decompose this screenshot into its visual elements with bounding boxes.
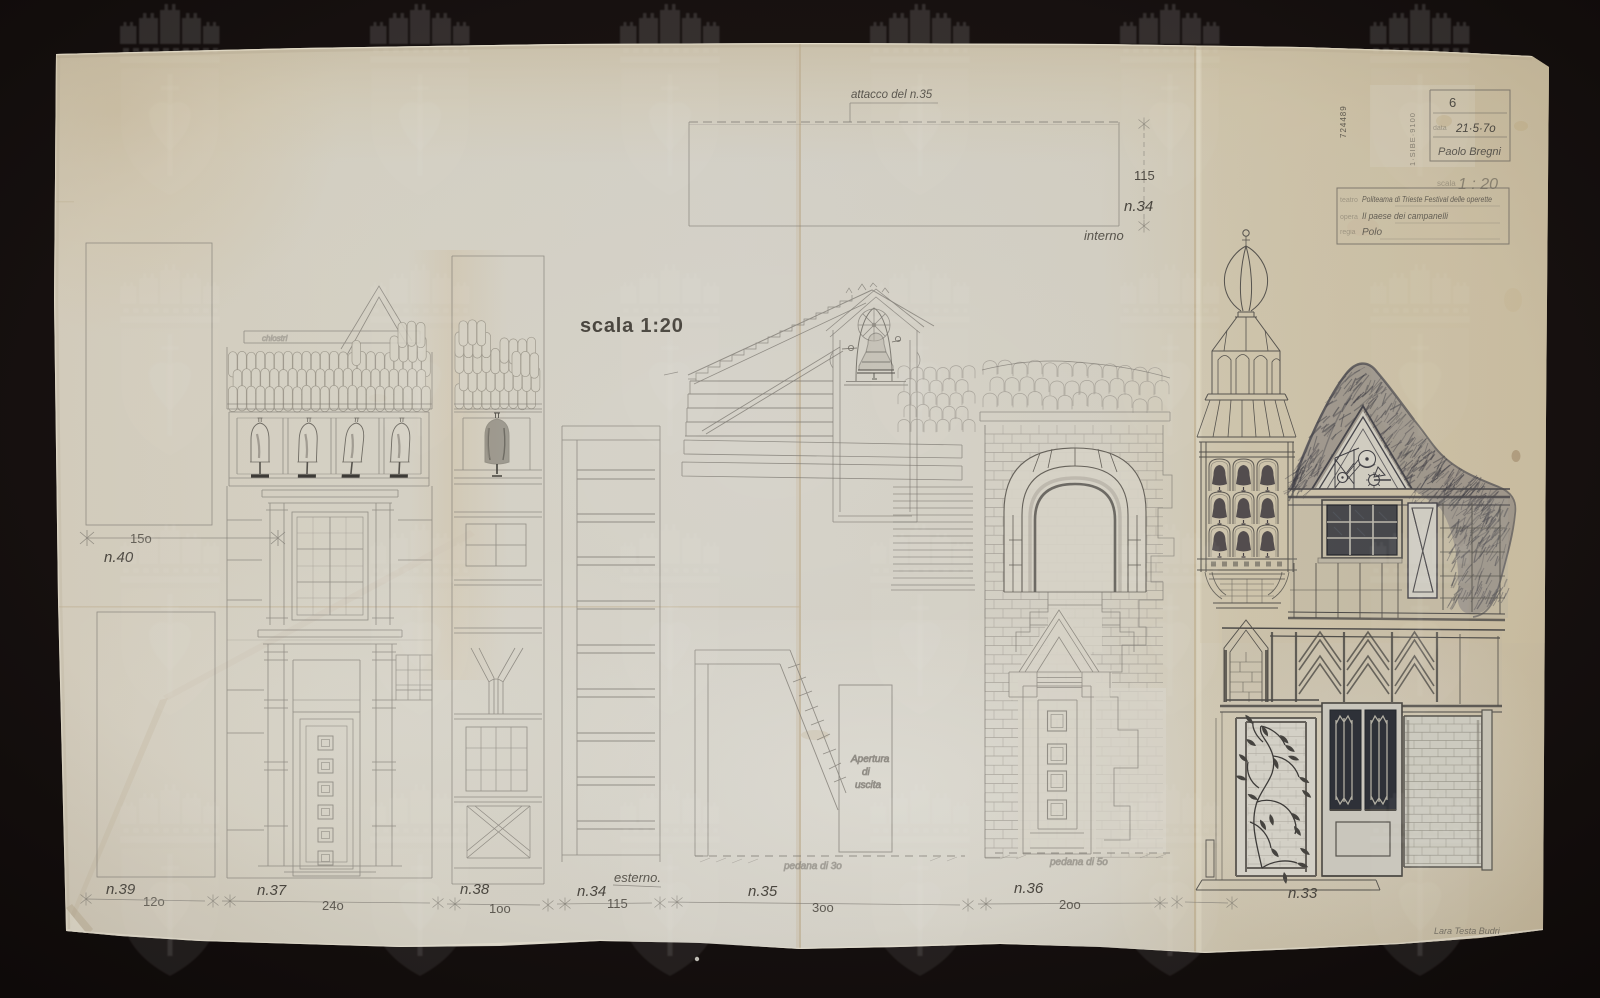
svg-text:24o: 24o xyxy=(322,898,344,913)
svg-text:n.34: n.34 xyxy=(577,883,606,900)
svg-text:interno: interno xyxy=(1084,228,1124,243)
svg-text:pedana di 5o: pedana di 5o xyxy=(1049,857,1108,868)
svg-text:regia: regia xyxy=(1340,229,1356,236)
svg-text:chiostri: chiostri xyxy=(262,334,288,343)
svg-text:Apertura: Apertura xyxy=(850,754,890,765)
svg-text:2oo: 2oo xyxy=(1059,897,1081,912)
svg-text:uscita: uscita xyxy=(855,780,882,791)
svg-text:n.35: n.35 xyxy=(748,883,778,900)
svg-text:Il paese dei campanelli: Il paese dei campanelli xyxy=(1362,211,1449,221)
svg-text:1 : 20: 1 : 20 xyxy=(1458,176,1498,193)
svg-text:1oo: 1oo xyxy=(489,901,511,916)
svg-text:di: di xyxy=(862,767,871,778)
svg-text:n.34: n.34 xyxy=(1124,198,1153,215)
svg-text:Polo: Polo xyxy=(1362,227,1382,238)
svg-text:n.36: n.36 xyxy=(1014,880,1044,897)
svg-text:teatro: teatro xyxy=(1340,197,1358,204)
svg-text:n.33: n.33 xyxy=(1288,885,1318,902)
svg-text:724489: 724489 xyxy=(1339,105,1348,138)
svg-text:Politeama di Trieste Festival: Politeama di Trieste Festival delle oper… xyxy=(1362,195,1492,204)
svg-text:n.37: n.37 xyxy=(257,882,287,899)
svg-text:pedana di 3o: pedana di 3o xyxy=(783,861,842,872)
svg-text:3oo: 3oo xyxy=(812,900,834,915)
svg-text:opera: opera xyxy=(1340,214,1358,221)
